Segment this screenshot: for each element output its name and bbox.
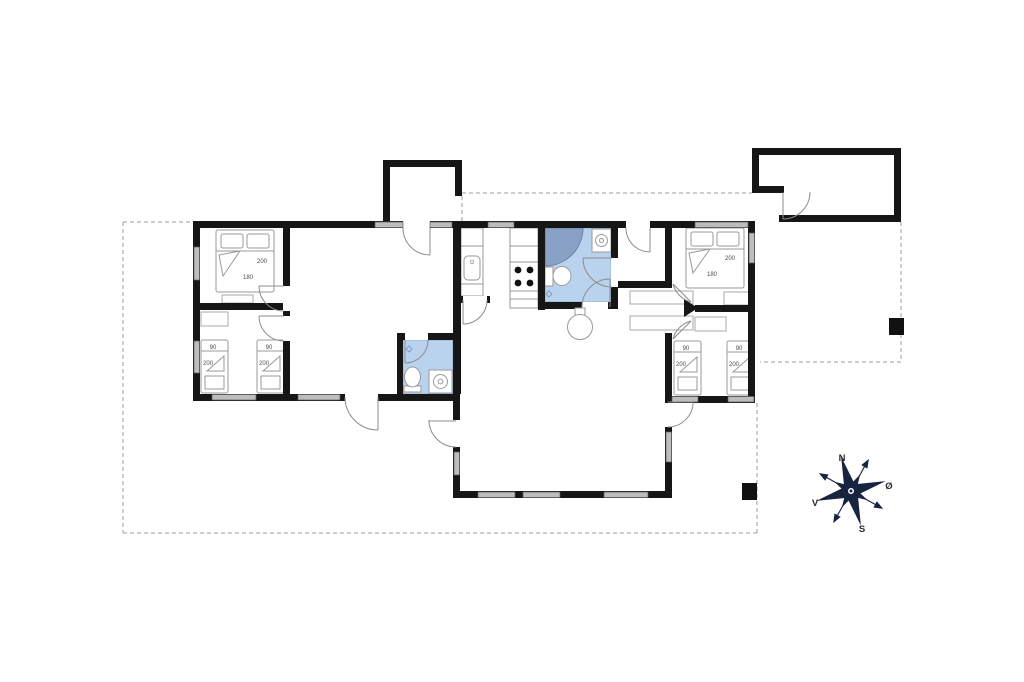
toilet-icon [545,267,571,287]
bed-dimension-label: 200 [729,362,740,368]
washing-machine-icon [592,229,611,252]
bed-dimension-label: 200 [676,362,687,368]
floor-plan-page: 200 180 200 180 90 200 90 200 90 200 90 … [0,0,1024,682]
bed-dimension-label: 90 [210,345,217,351]
bed-dimension-label: 90 [683,346,690,352]
compass-rose: N Ø V S [806,446,895,535]
floor-plan-canvas: 200 180 200 180 90 200 90 200 90 200 90 … [0,0,1024,682]
compass-label-east: Ø [885,481,892,492]
bed-dimension-label: 90 [266,345,273,351]
post-marker [889,318,904,335]
post-marker [742,483,757,500]
bed-dimension-label: 200 [203,361,214,367]
compass-label-north: N [839,453,846,464]
utility-counter [461,228,483,296]
stove-icon [510,262,538,291]
bed-dimension-label: 180 [707,272,718,278]
bed-dimension-label: 180 [243,275,254,281]
compass-label-west: V [812,498,819,509]
bed-dimension-label: 200 [259,361,270,367]
wood-stove-icon [568,308,593,340]
bed-dimension-label: 90 [736,346,743,352]
sink-icon [464,256,480,280]
compass-label-south: S [859,524,865,535]
bed-dimension-label: 200 [257,259,268,265]
bed-dimension-label: 200 [725,256,736,262]
double-bed [686,228,744,288]
washing-machine-icon [429,370,452,393]
kitchen-counter [510,228,538,308]
toilet-icon [404,367,421,392]
walls [193,148,901,498]
